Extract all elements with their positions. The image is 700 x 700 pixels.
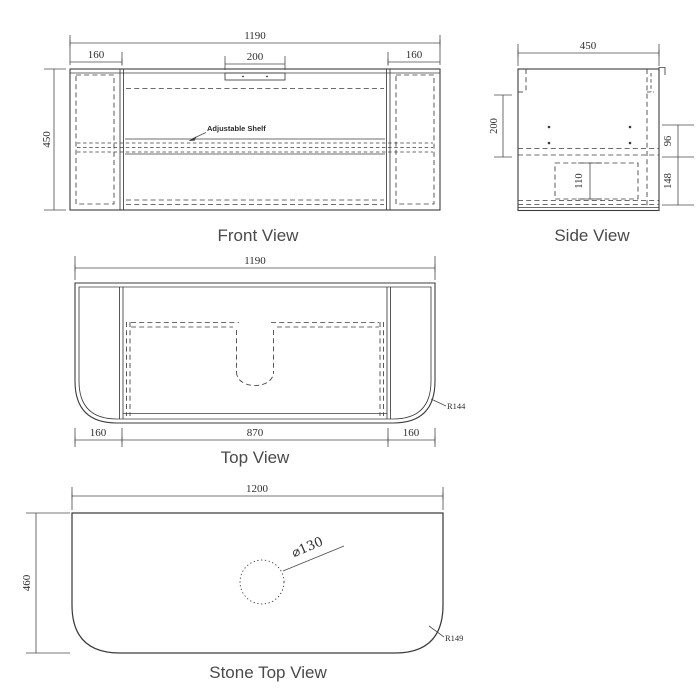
- side-dim-rail-to-shelf: 200: [489, 95, 512, 157]
- front-overall-width-label: 1190: [244, 30, 266, 42]
- front-cabinet-outline: [70, 69, 440, 210]
- stone-dim-depth: 460: [21, 513, 70, 653]
- top-view: 1190 160 870 160 R144 Top View: [75, 255, 466, 467]
- side-dim-depth: 450: [518, 40, 659, 66]
- side-rail-to-shelf-label: 200: [489, 118, 500, 134]
- side-view-title: Side View: [554, 226, 630, 245]
- top-inner-width-label: 870: [247, 427, 264, 439]
- top-corner-radius-label: R144: [447, 401, 466, 411]
- adjustable-shelf-label: Adjustable Shelf: [207, 124, 266, 133]
- top-dims-bottom: 160 870 160: [75, 427, 435, 447]
- hole-diameter-callout: ⌀130: [283, 534, 344, 571]
- side-shelf-gap-label: 96: [663, 136, 674, 147]
- front-left-panel-label: 160: [88, 49, 105, 61]
- stone-depth-label: 460: [21, 574, 33, 591]
- stone-width-label: 1200: [246, 483, 269, 495]
- tap-hole: [240, 560, 284, 604]
- stone-dim-width: 1200: [72, 483, 443, 510]
- front-handle-width-label: 200: [247, 51, 264, 63]
- top-view-title: Top View: [221, 448, 290, 467]
- side-dim-recess-height: 110: [574, 163, 602, 199]
- adjustable-shelf-callout: Adjustable Shelf: [189, 124, 267, 141]
- handle-recess: [225, 73, 285, 80]
- top-right-panel-label: 160: [403, 427, 420, 439]
- top-dim-overall-width: 1190: [75, 255, 435, 280]
- top-overall-width-label: 1190: [244, 255, 266, 267]
- drawing-sheet: 1190 160 200 160 450 Adjustable Shel: [0, 0, 700, 700]
- side-dim-shelf-to-bottom: 148: [662, 157, 694, 205]
- top-corner-radius-callout: R144: [431, 399, 466, 411]
- top-left-panel-label: 160: [90, 427, 107, 439]
- stone-corner-radius-callout: R149: [429, 626, 463, 643]
- hole-diameter-label: ⌀130: [290, 534, 326, 561]
- side-hidden-lines: [518, 69, 659, 207]
- stone-top-outline: [72, 513, 443, 653]
- stone-top-view: ⌀130 1200 460 R149 Stone Top View: [21, 483, 463, 682]
- front-dim-height: 450: [41, 69, 66, 210]
- front-view-title: Front View: [218, 226, 300, 245]
- front-view: 1190 160 200 160 450 Adjustable Shel: [41, 30, 440, 245]
- vanity-technical-drawing: 1190 160 200 160 450 Adjustable Shel: [0, 0, 700, 700]
- wall-hanger-hook: [659, 68, 665, 76]
- front-hidden-lines: [76, 75, 434, 205]
- front-height-label: 450: [41, 131, 53, 148]
- side-shelf-to-bottom-label: 148: [663, 173, 674, 189]
- side-cabinet-outline: [518, 68, 665, 211]
- front-dim-right-panel: 160: [388, 49, 440, 66]
- stone-top-view-title: Stone Top View: [209, 663, 327, 682]
- top-hidden-lines: [127, 322, 384, 416]
- side-recess-height-label: 110: [574, 173, 585, 188]
- stone-corner-radius-label: R149: [445, 633, 463, 643]
- front-dim-handle: 200: [225, 51, 285, 70]
- side-depth-label: 450: [580, 40, 597, 52]
- side-dim-shelf-gap: 96: [662, 125, 694, 157]
- side-view: 450 200 96 148 110 Side View: [489, 40, 694, 245]
- front-dim-left-panel: 160: [70, 49, 122, 66]
- top-cabinet-outline: [75, 283, 435, 423]
- basin-cutout-hidden: [237, 372, 274, 386]
- front-right-panel-label: 160: [406, 49, 423, 61]
